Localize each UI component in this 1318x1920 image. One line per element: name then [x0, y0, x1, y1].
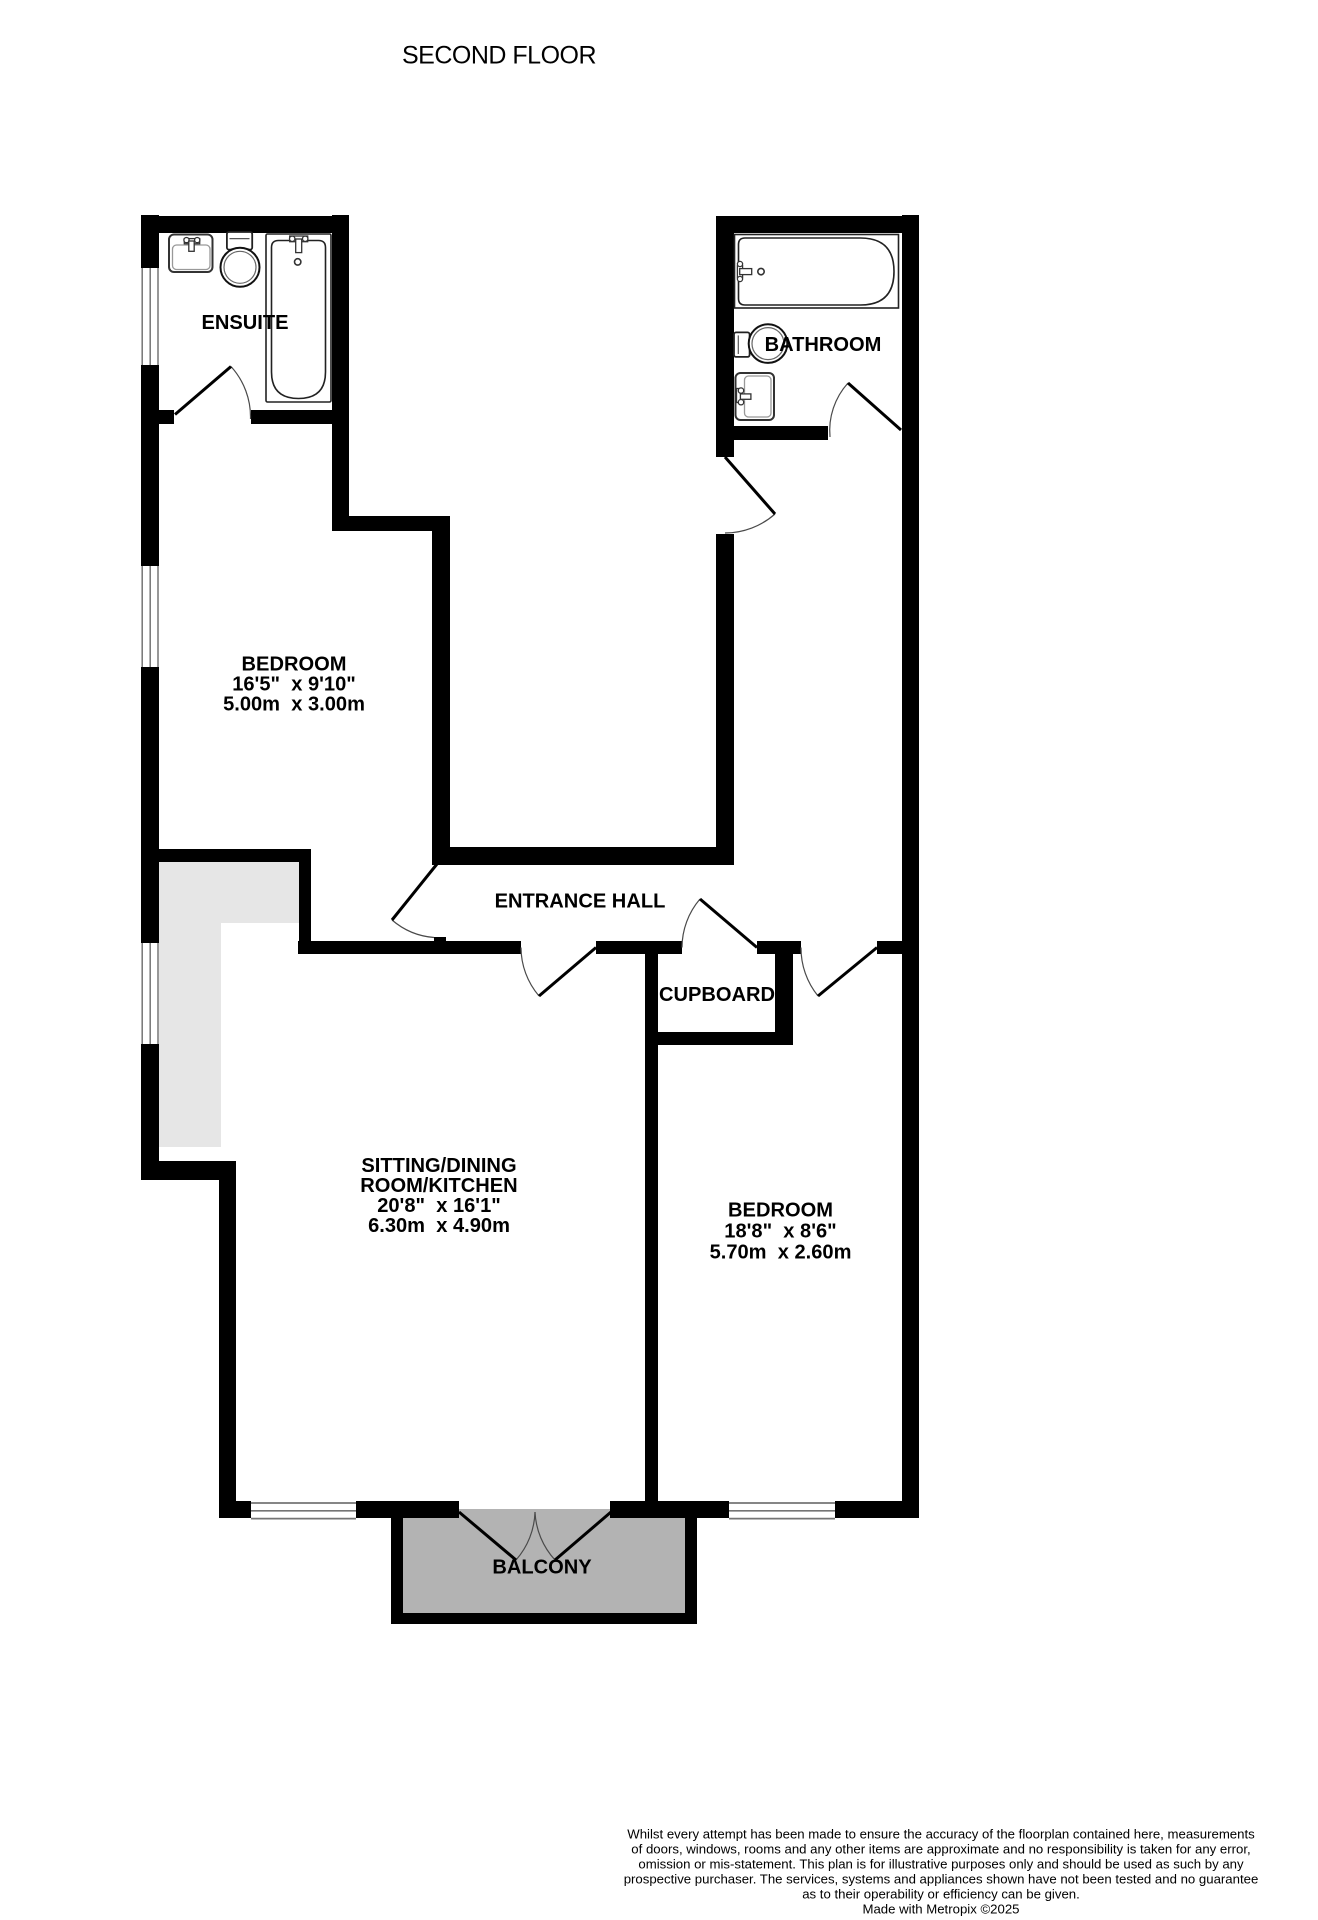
svg-text:SITTING/DINING: SITTING/DINING [361, 1155, 516, 1177]
svg-text:18'8" x 8'6": 18'8" x 8'6" [724, 1221, 836, 1243]
svg-text:ENSUITE: ENSUITE [201, 312, 288, 334]
svg-text:Made with Metropix ©2025: Made with Metropix ©2025 [862, 1902, 1019, 1917]
svg-text:ROOM/KITCHEN: ROOM/KITCHEN [360, 1175, 517, 1197]
svg-text:ENTRANCE HALL: ENTRANCE HALL [495, 891, 666, 913]
svg-text:BATHROOM: BATHROOM [765, 334, 882, 356]
svg-text:of doors, windows, rooms and a: of doors, windows, rooms and any other i… [631, 1842, 1250, 1857]
svg-text:SECOND FLOOR: SECOND FLOOR [402, 42, 596, 70]
svg-text:6.30m x 4.90m: 6.30m x 4.90m [368, 1215, 510, 1237]
svg-text:BALCONY: BALCONY [492, 1557, 592, 1579]
svg-text:BEDROOM: BEDROOM [242, 653, 347, 675]
svg-text:BEDROOM: BEDROOM [728, 1200, 833, 1222]
svg-text:omission or mis-statement. Thi: omission or mis-statement. This plan is … [638, 1857, 1244, 1872]
svg-text:CUPBOARD: CUPBOARD [659, 984, 775, 1006]
svg-text:5.70m x 2.60m: 5.70m x 2.60m [710, 1242, 852, 1264]
svg-text:16'5" x 9'10": 16'5" x 9'10" [232, 673, 356, 695]
svg-text:as to their operability or eff: as to their operability or efficiency ca… [802, 1887, 1080, 1902]
svg-text:prospective purchaser. The ser: prospective purchaser. The services, sys… [624, 1872, 1259, 1887]
svg-text:5.00m x 3.00m: 5.00m x 3.00m [223, 693, 365, 715]
svg-text:20'8" x 16'1": 20'8" x 16'1" [377, 1195, 501, 1217]
svg-text:Whilst every attempt has been: Whilst every attempt has been made to en… [627, 1827, 1255, 1842]
